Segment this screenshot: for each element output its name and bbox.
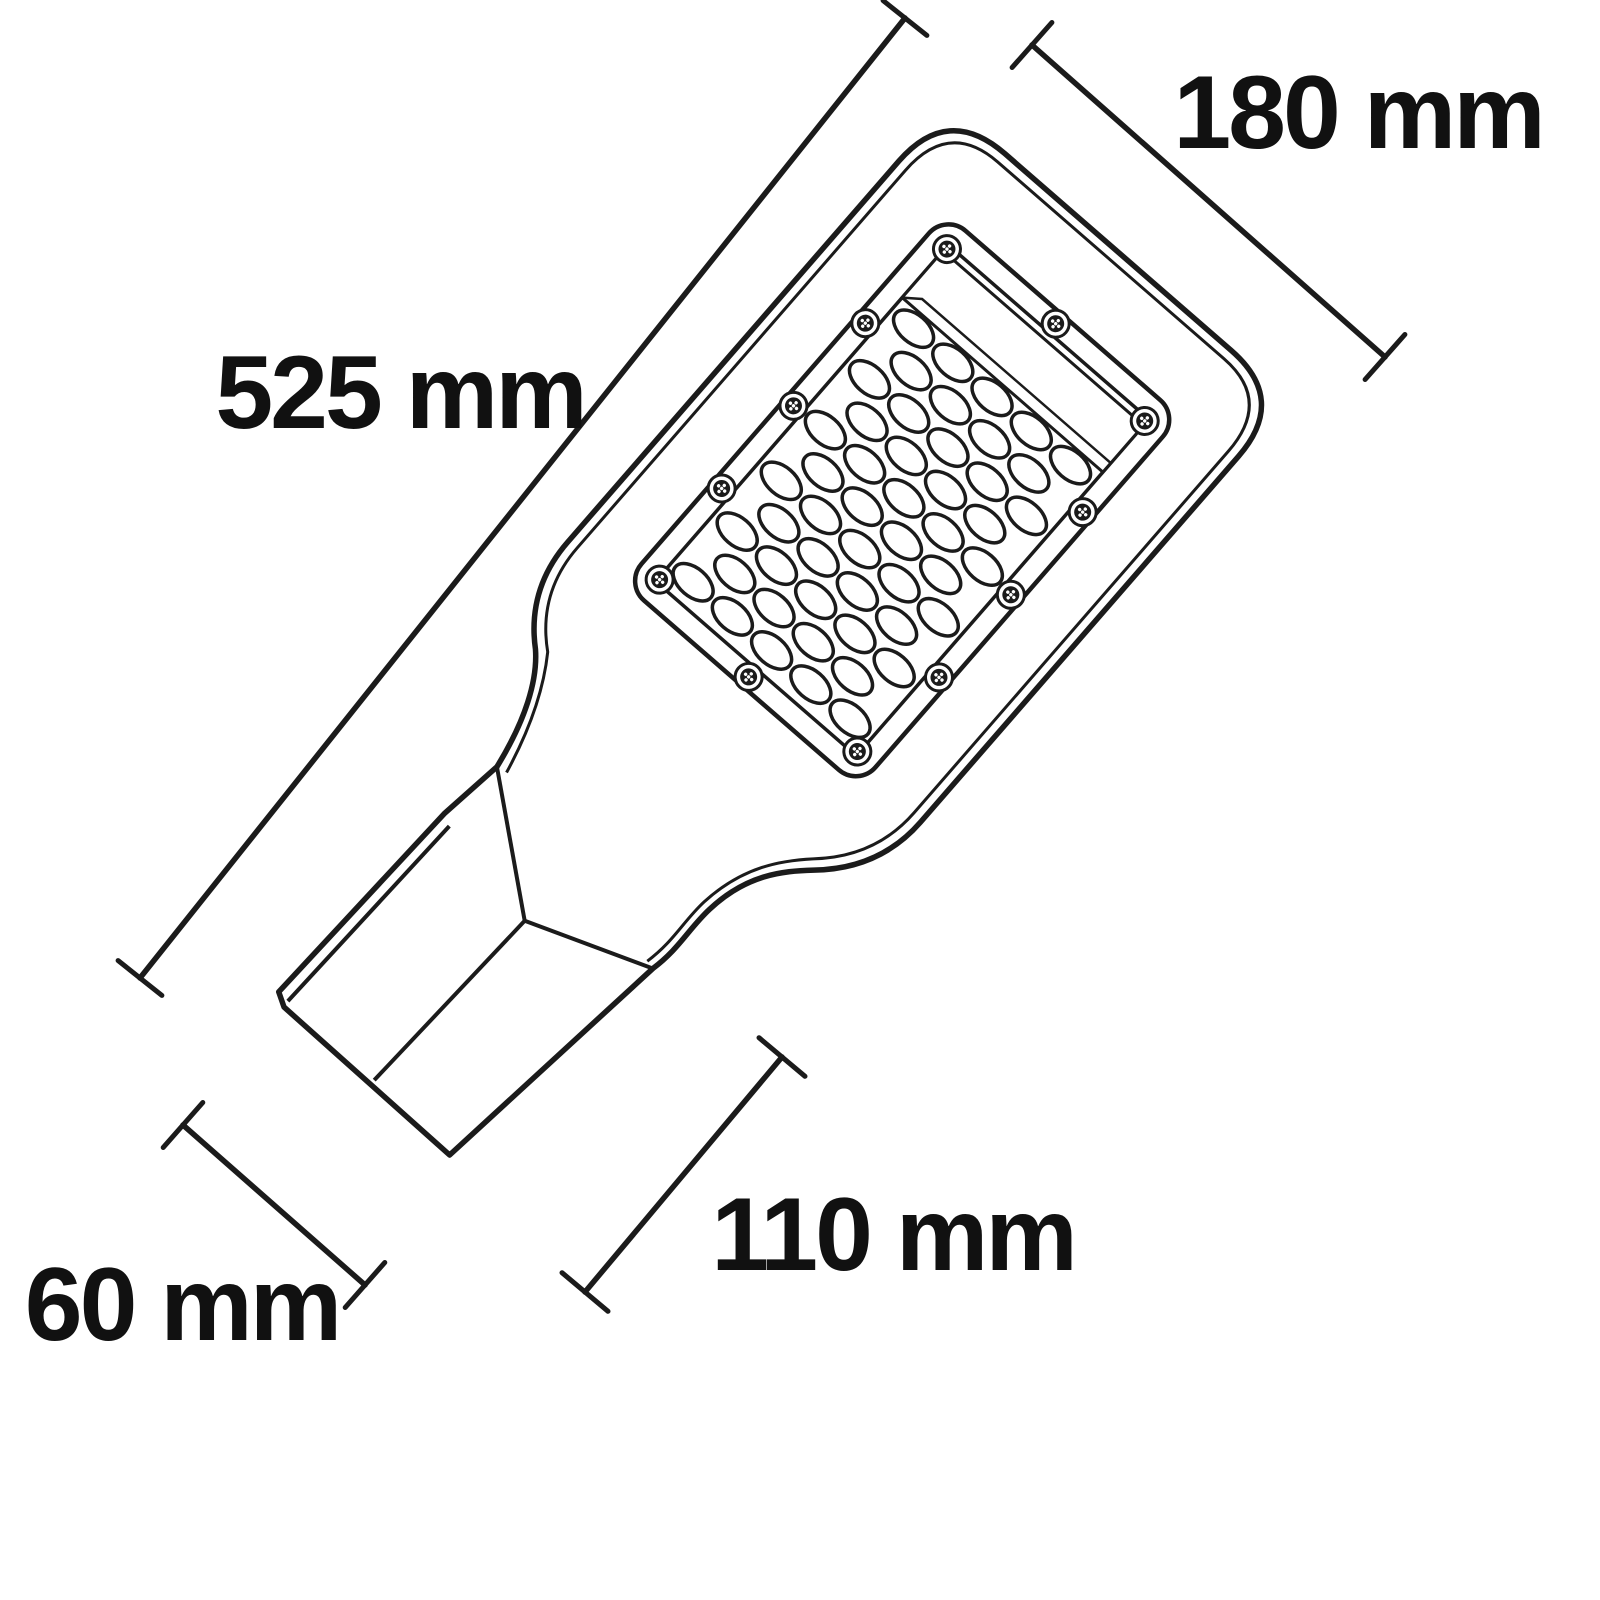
lamp-drawing (213, 104, 1287, 1245)
dimension-tick (118, 961, 162, 996)
dimension-tick (562, 1273, 608, 1312)
street-light-dimension-diagram: 525 mm 180 mm 110 mm 60 mm (0, 0, 1600, 1600)
dimension-60: 60 mm (25, 1103, 385, 1364)
dimension-tick (883, 1, 927, 36)
dimension-label-525: 525 mm (215, 335, 584, 451)
dimension-label-110: 110 mm (711, 1177, 1075, 1293)
dimension-110: 110 mm (562, 1038, 1075, 1312)
dimension-label-180: 180 mm (1173, 55, 1542, 171)
dimension-label-60: 60 mm (25, 1247, 340, 1363)
dimension-tick (759, 1038, 805, 1077)
